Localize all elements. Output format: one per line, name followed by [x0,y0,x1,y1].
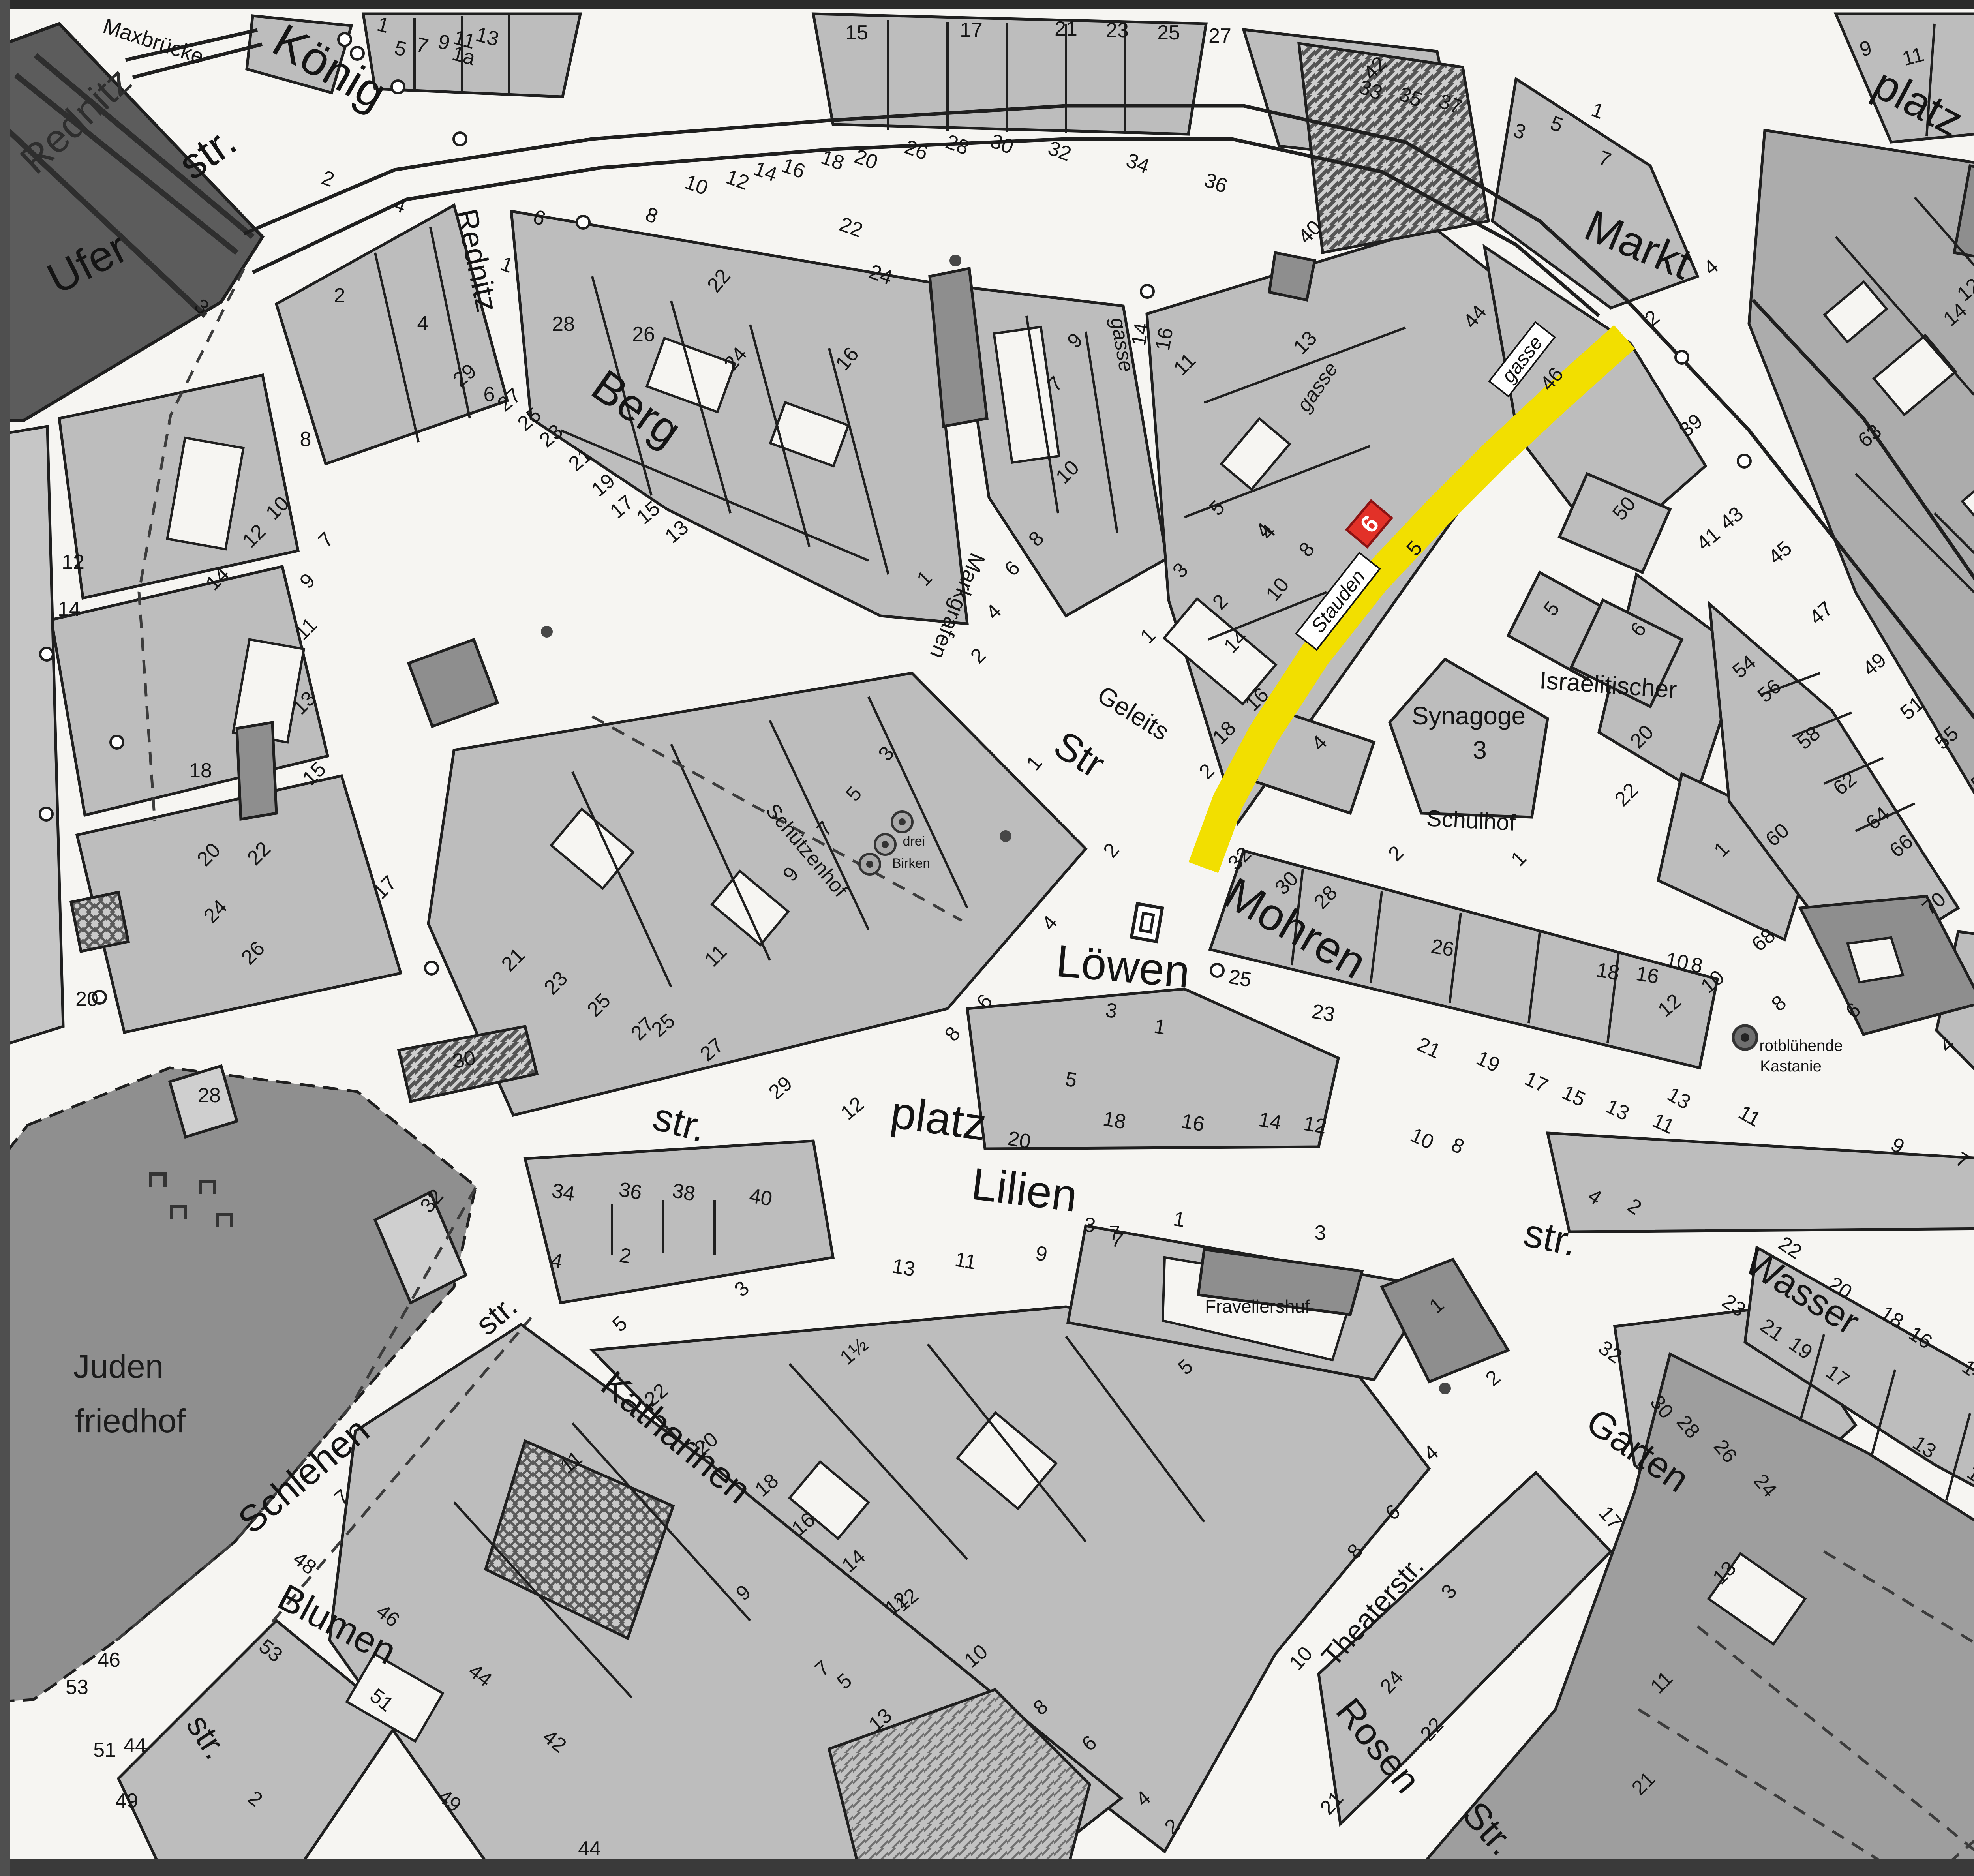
house-number: 18 [189,759,212,782]
boundary-stone-marker [1211,964,1223,977]
house-number: 16 [1151,326,1178,353]
house-number: 14 [58,598,81,621]
hatched-building [71,892,128,951]
street-label: Fraveliershuf [1205,1296,1310,1317]
house-number: 26 [632,323,655,346]
house-number: 30 [450,1046,478,1073]
boundary-stone-marker [40,648,53,660]
street-label: Synagoge [1412,702,1526,730]
tree-icon [1000,830,1011,842]
boundary-stone-marker [111,736,123,749]
house-number: 23 [1310,1000,1336,1026]
house-number: 49 [115,1790,138,1812]
house-number: 46 [98,1649,120,1672]
street-label: 3 [1473,736,1487,764]
boundary-stone-marker [40,808,53,820]
house-number: 16 [1180,1110,1206,1136]
house-number: 8 [300,428,311,451]
scanned-city-map-page: gasseStauden6MaxbrückeKönigstr.UferRedni… [0,0,1974,1876]
house-number: 12 [62,551,84,574]
house-number: 10 [1664,948,1690,975]
dark-building [237,722,276,819]
house-number: 12 [1302,1112,1328,1139]
house-number: 27 [1208,24,1231,47]
house-number: 34 [550,1179,576,1206]
hatched-building [1299,43,1488,253]
house-number: 28 [198,1084,221,1107]
house-number: 21 [1055,17,1077,40]
boundary-stone-marker [425,962,438,974]
house-number: 2 [334,284,345,307]
house-number: 7 [1109,1222,1120,1245]
house-number: 20 [75,988,98,1011]
street-label: rotblühende [1759,1037,1843,1054]
house-number: 40 [747,1184,774,1211]
boundary-stone-marker [392,81,404,93]
boundary-stone-marker [1738,455,1751,467]
house-number: 23 [1106,19,1129,42]
house-number: 16 [1634,962,1661,989]
street-label: friedhof [75,1402,186,1439]
house-number: 25 [1157,21,1180,44]
boundary-stone-marker [1141,285,1154,298]
dark-building [1269,253,1315,300]
monument-icon [1131,904,1162,942]
boundary-stone-marker [577,216,589,229]
house-number: 18 [1595,959,1621,985]
house-number: 14 [1127,321,1154,348]
street-label: drei [903,834,925,849]
house-number: 14 [1257,1108,1283,1135]
boundary-stone-marker [454,133,466,145]
house-number: 44 [124,1734,146,1757]
street-label: Schulhof [1426,805,1517,836]
house-number: 15 [845,21,868,44]
street-label: Kastanie [1760,1058,1822,1075]
house-number: 44 [578,1837,601,1860]
house-number: 20 [1006,1127,1032,1154]
house-number: 51 [93,1739,116,1762]
tree-icon [541,626,553,638]
tree-icon [949,255,961,266]
house-number: 13 [890,1255,917,1281]
house-number: 36 [617,1178,644,1204]
house-number: 28 [552,313,575,336]
house-number: 26 [1429,935,1456,961]
city-map: gasseStauden6MaxbrückeKönigstr.UferRedni… [0,0,1974,1876]
house-number: 53 [66,1676,88,1699]
house-number: 25 [1227,965,1253,992]
house-number: 38 [670,1179,697,1206]
house-number: 11 [953,1248,978,1274]
house-number: 3 [1315,1221,1326,1244]
house-number: 18 [1101,1107,1128,1134]
boundary-stone-marker [1676,351,1688,364]
tree-icon [1439,1383,1451,1394]
house-number: 4 [417,312,429,335]
house-number: 6 [484,383,495,406]
house-number: 17 [960,19,983,41]
street-label: Juden [73,1348,164,1385]
street-label: Birken [892,856,930,871]
